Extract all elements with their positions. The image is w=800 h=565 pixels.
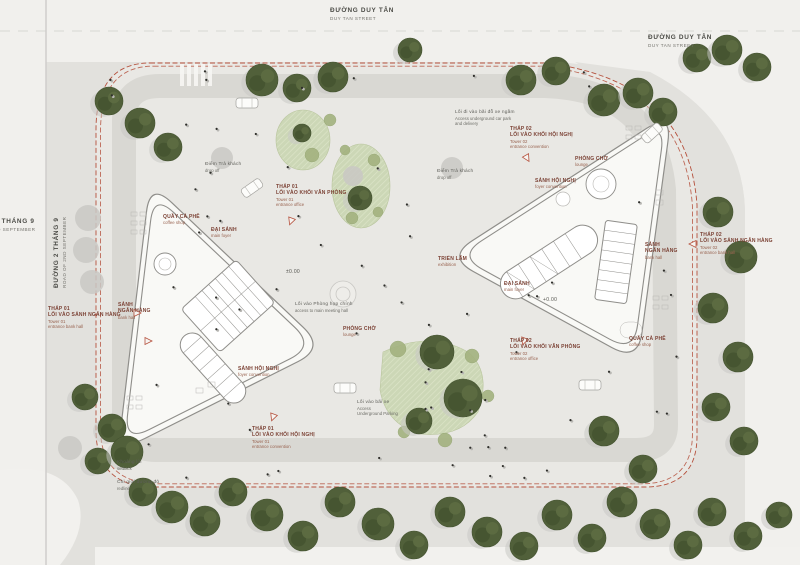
car [579, 380, 601, 390]
southwest-parcel [0, 469, 81, 565]
plaza-circle [330, 281, 356, 307]
tower-01-spiral-stair [154, 253, 176, 275]
car [334, 383, 356, 393]
car [236, 98, 258, 108]
site-plan-drawing [0, 0, 800, 565]
tower-02-small-circle [556, 192, 570, 206]
tower-02-rotunda [586, 169, 616, 199]
site-plan-canvas: ĐƯỜNG DUY TÂNDUY TAN STREETĐƯỜNG DUY TÂN… [0, 0, 800, 565]
